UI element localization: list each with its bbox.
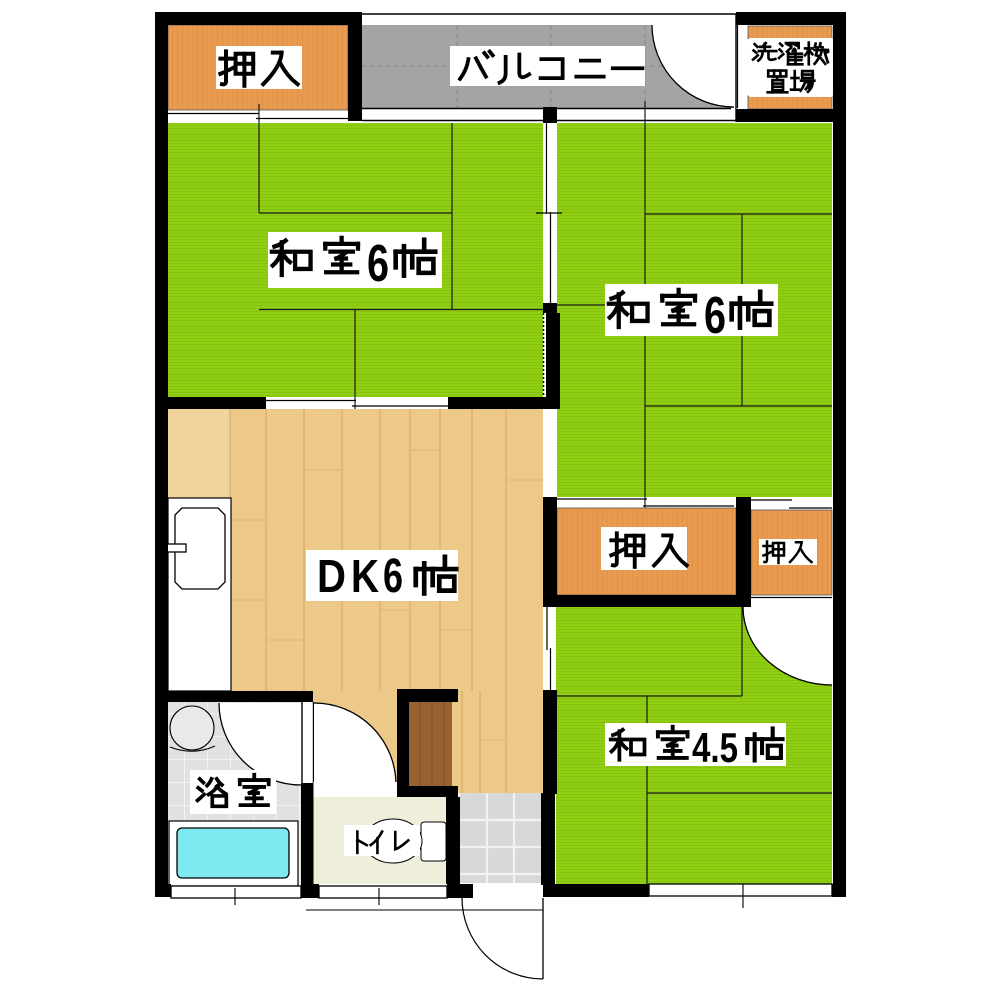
- svg-text:D: D: [317, 550, 346, 602]
- svg-text:6: 6: [704, 287, 726, 345]
- svg-text:4.5: 4.5: [692, 724, 738, 771]
- svg-text:6: 6: [383, 550, 403, 603]
- svg-text:6: 6: [367, 235, 389, 293]
- svg-text:K: K: [351, 550, 379, 602]
